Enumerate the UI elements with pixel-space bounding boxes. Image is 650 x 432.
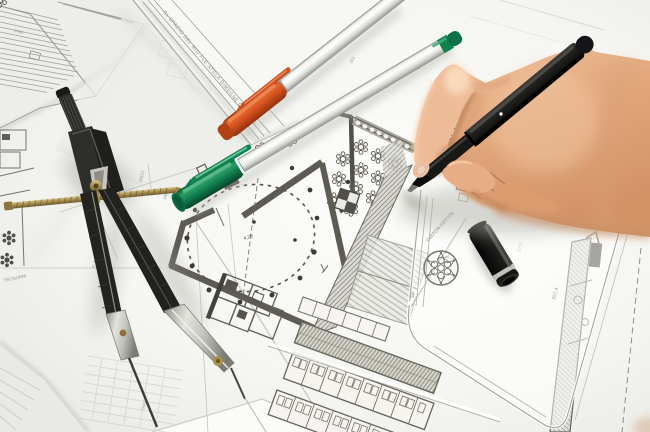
svg-text:50: 50 [410, 292, 416, 298]
